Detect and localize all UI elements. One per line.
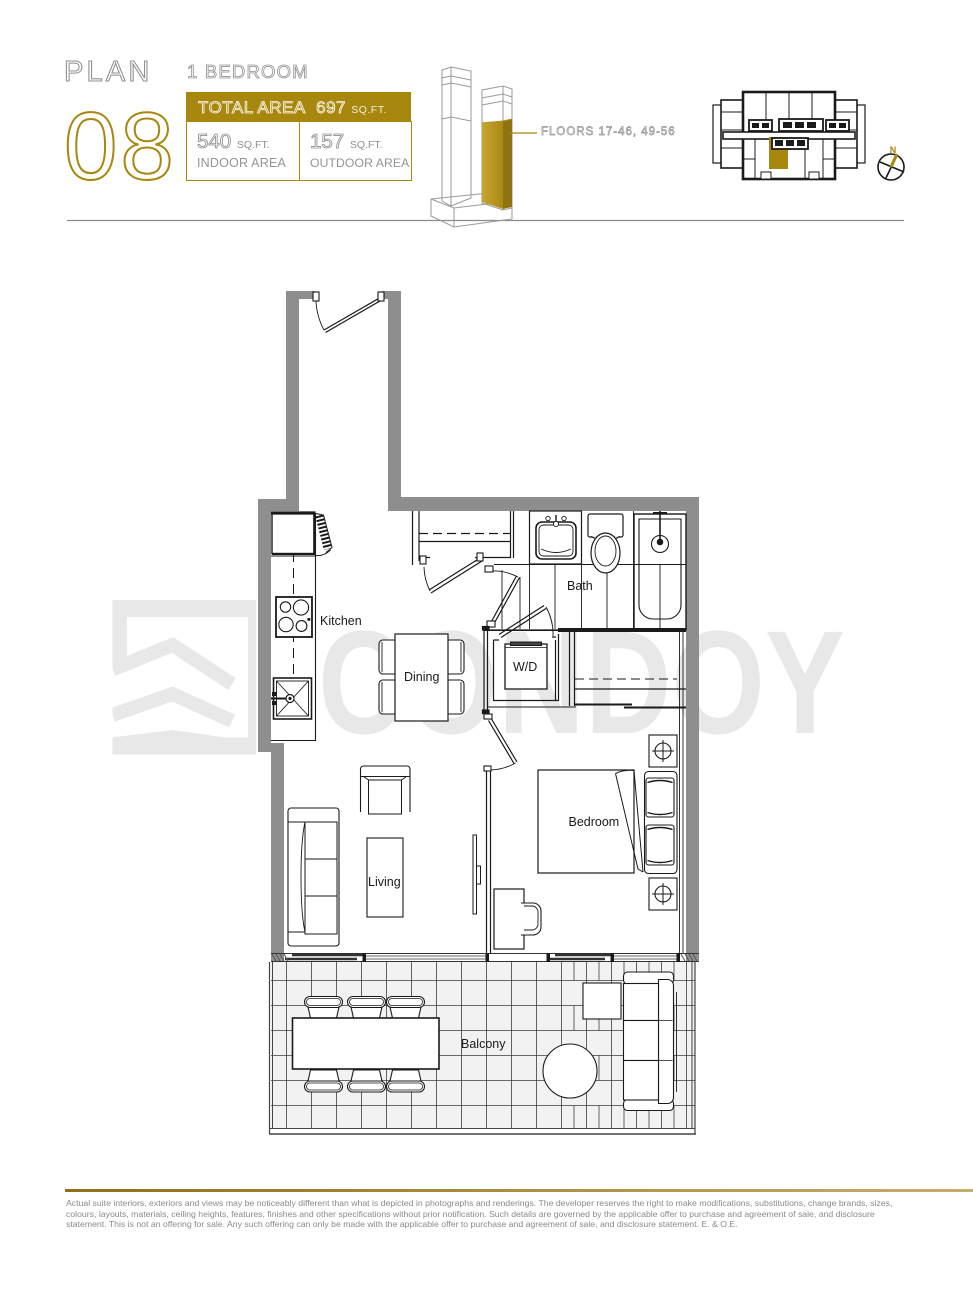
svg-text:Kitchen: Kitchen <box>320 614 362 628</box>
svg-text:Dining: Dining <box>404 670 439 684</box>
svg-text:Bath: Bath <box>567 579 593 593</box>
svg-text:Bedroom: Bedroom <box>569 815 620 829</box>
svg-text:W/D: W/D <box>513 660 537 674</box>
svg-text:Balcony: Balcony <box>461 1037 506 1051</box>
svg-text:Living: Living <box>368 875 401 889</box>
